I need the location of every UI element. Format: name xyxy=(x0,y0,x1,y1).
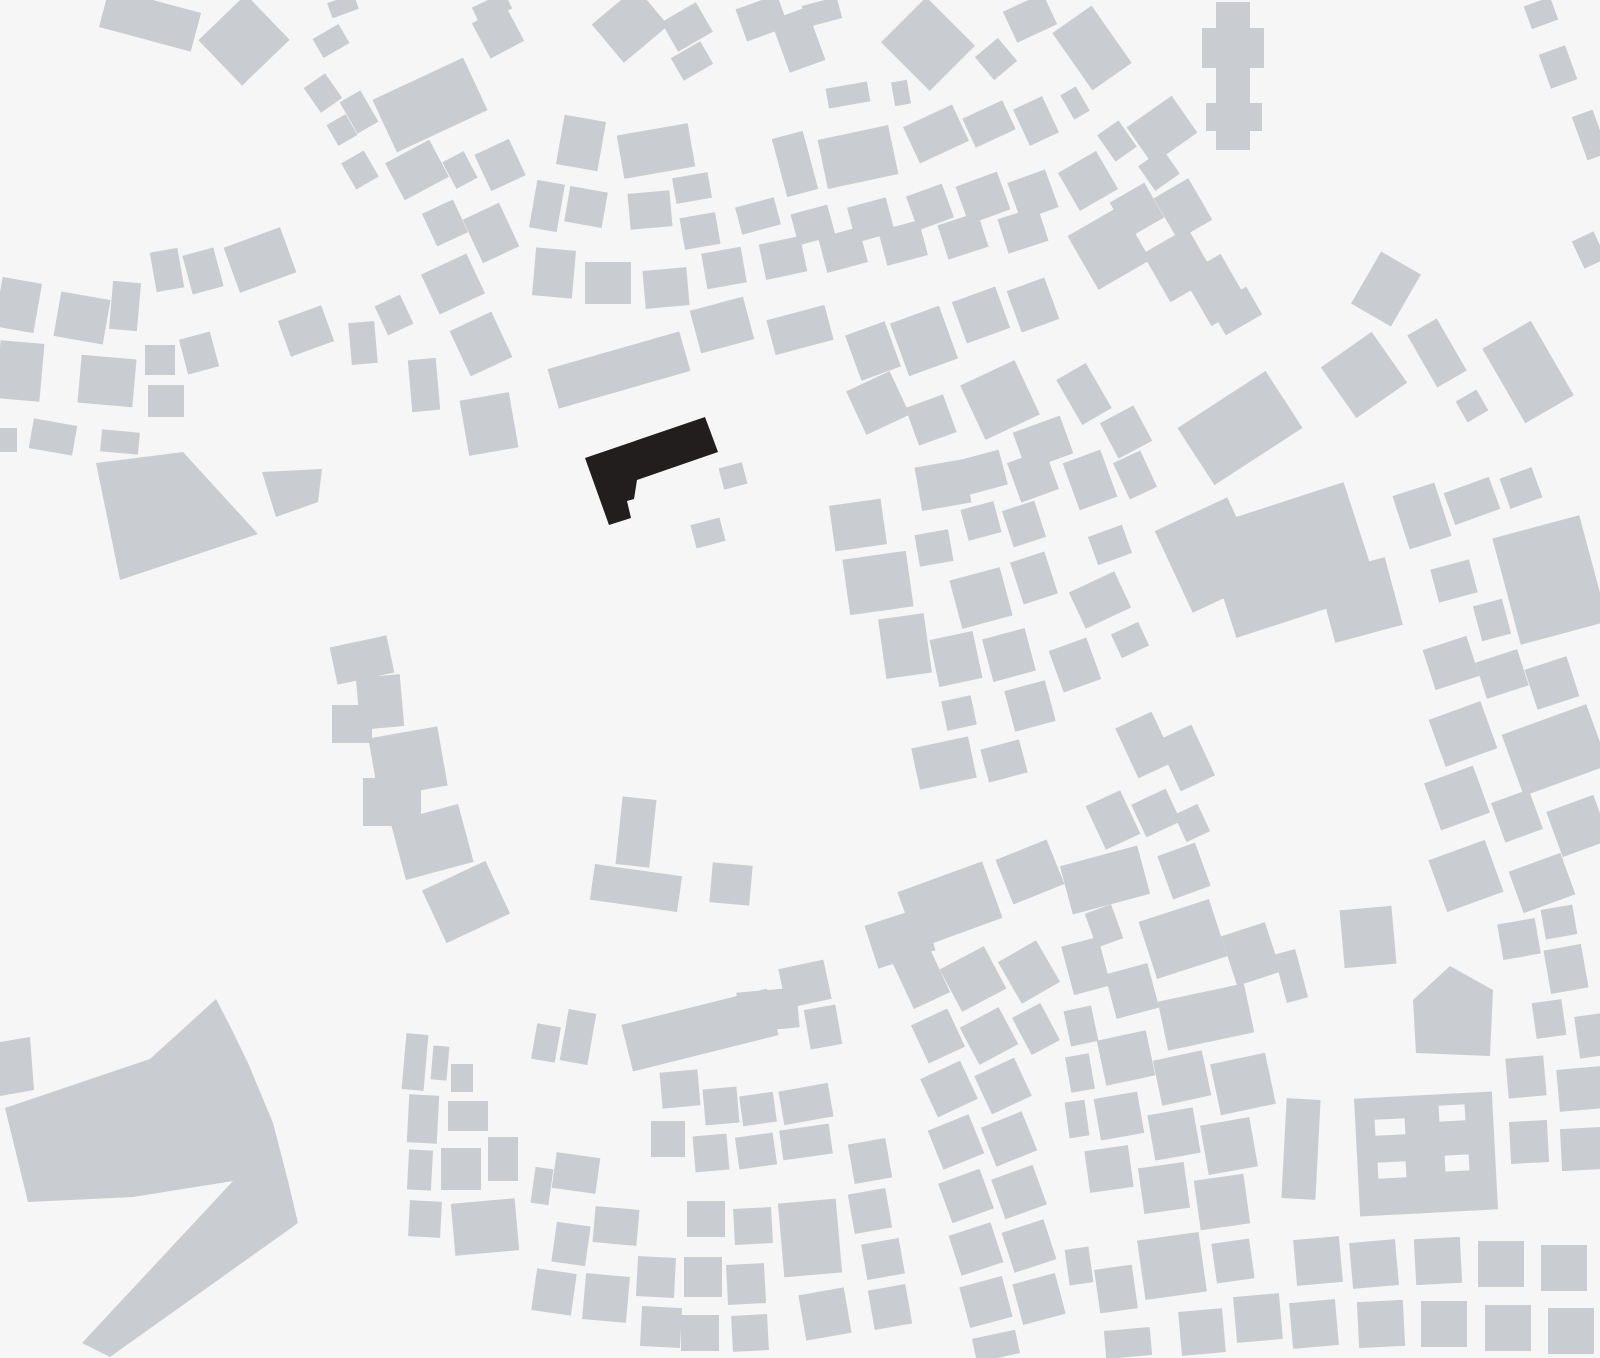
building xyxy=(868,1284,912,1330)
courtyard xyxy=(1375,1118,1406,1136)
building xyxy=(778,1199,842,1278)
building xyxy=(407,1149,433,1190)
building xyxy=(878,613,932,679)
building xyxy=(1104,1327,1152,1358)
building xyxy=(593,1206,640,1246)
site-plan xyxy=(0,0,1600,1358)
building xyxy=(448,1101,488,1131)
building xyxy=(1509,1120,1549,1164)
building xyxy=(1281,1098,1320,1200)
building xyxy=(1497,918,1541,960)
building xyxy=(148,385,184,417)
building xyxy=(861,1238,905,1280)
building xyxy=(488,1137,518,1181)
building xyxy=(726,1263,766,1305)
building xyxy=(1084,1145,1133,1193)
building xyxy=(616,796,657,867)
building xyxy=(408,1200,442,1238)
building xyxy=(735,1133,777,1170)
building xyxy=(681,1315,719,1351)
building xyxy=(679,212,720,250)
building xyxy=(1211,1239,1254,1284)
building xyxy=(709,862,752,905)
building xyxy=(332,705,372,743)
building xyxy=(0,340,44,402)
building xyxy=(551,1222,590,1266)
building xyxy=(842,551,913,615)
building xyxy=(556,115,606,172)
building xyxy=(848,1138,892,1184)
building xyxy=(1340,906,1397,968)
building xyxy=(1560,1127,1600,1171)
courtyard xyxy=(1378,1161,1407,1178)
building xyxy=(451,1198,519,1255)
building xyxy=(1556,1066,1600,1112)
building xyxy=(701,247,747,289)
building xyxy=(1178,1308,1226,1356)
building xyxy=(53,292,110,345)
courtyard xyxy=(1445,1154,1470,1171)
building xyxy=(100,429,140,454)
building xyxy=(914,529,953,566)
building xyxy=(660,1069,701,1108)
building xyxy=(407,1094,439,1144)
building xyxy=(1194,1174,1250,1230)
courtyard xyxy=(1439,1104,1466,1121)
building xyxy=(687,1201,725,1237)
building xyxy=(451,1064,473,1092)
building xyxy=(731,1314,769,1352)
building xyxy=(848,1188,892,1234)
building xyxy=(640,1306,682,1348)
building xyxy=(441,1148,481,1190)
building xyxy=(1541,904,1578,939)
building xyxy=(1485,1305,1531,1351)
building xyxy=(78,355,137,408)
building xyxy=(531,1268,576,1315)
building xyxy=(628,190,673,230)
building xyxy=(1137,1232,1207,1300)
building xyxy=(636,1256,676,1298)
building xyxy=(1532,999,1567,1039)
edge-block xyxy=(0,1037,34,1096)
building xyxy=(642,267,689,309)
building xyxy=(1354,1091,1498,1216)
building xyxy=(1357,1300,1405,1348)
building xyxy=(1094,1091,1145,1140)
building xyxy=(1138,1162,1190,1214)
building xyxy=(1200,1117,1258,1175)
building xyxy=(798,1287,851,1340)
building xyxy=(582,1273,630,1323)
building xyxy=(1543,944,1588,994)
building xyxy=(1202,28,1264,68)
building xyxy=(651,1121,685,1157)
building xyxy=(739,1092,777,1126)
building xyxy=(1414,1237,1462,1285)
building xyxy=(684,1257,722,1297)
building xyxy=(1541,1245,1587,1291)
building xyxy=(145,345,175,375)
building xyxy=(348,321,378,365)
building xyxy=(408,358,440,412)
building xyxy=(941,695,977,731)
building xyxy=(829,499,887,552)
building xyxy=(1548,1308,1594,1354)
building xyxy=(109,281,141,331)
site-plan-svg xyxy=(0,0,1600,1358)
building xyxy=(431,1045,450,1080)
building xyxy=(702,1087,739,1126)
building xyxy=(552,1152,601,1194)
building xyxy=(1421,1301,1467,1347)
building xyxy=(1349,1239,1399,1289)
building xyxy=(1289,1299,1339,1349)
building xyxy=(1233,1293,1283,1343)
building xyxy=(0,428,17,452)
building xyxy=(692,1134,729,1173)
building xyxy=(532,247,576,298)
building xyxy=(1094,1265,1138,1314)
building xyxy=(1505,1055,1546,1098)
building xyxy=(804,1005,842,1050)
building xyxy=(1065,1247,1094,1286)
building xyxy=(585,262,631,304)
building xyxy=(1147,1107,1200,1160)
building xyxy=(460,392,519,456)
building xyxy=(1478,1241,1524,1287)
building xyxy=(733,1207,773,1245)
building xyxy=(1206,103,1262,131)
building xyxy=(564,186,608,228)
building xyxy=(1293,1236,1343,1286)
